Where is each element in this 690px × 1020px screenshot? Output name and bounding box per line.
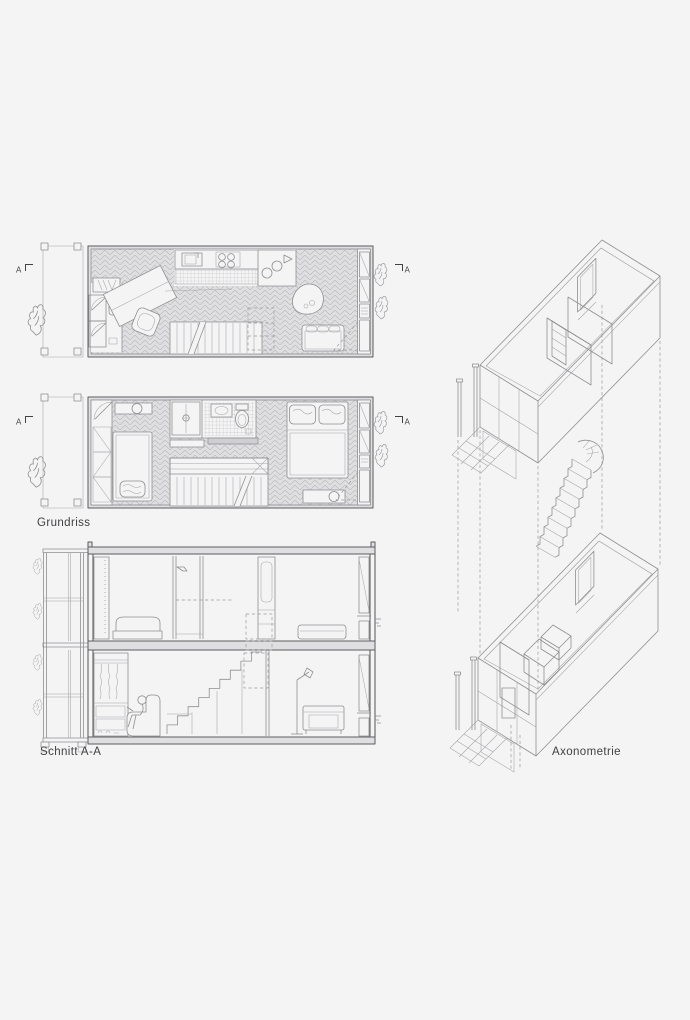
facade-window [502,688,515,718]
section-cut-symbol [26,417,34,424]
bathroom [170,400,258,447]
section-label: Schnitt A-A [40,746,101,758]
mid-cabinet [258,557,275,639]
stair-void-dashed [246,614,272,639]
plant-sketch [33,654,42,670]
section-marker-letter: A [16,418,22,427]
plant-sketch [374,411,387,434]
glazed-facade [478,670,536,744]
shelf-ladder [552,321,566,365]
plant-sketch [33,603,42,619]
balcony-structure [33,549,88,752]
axon-window [578,258,596,320]
section-cut-symbol [395,417,403,424]
toilet [236,404,249,428]
top-rim [480,240,660,401]
section-marker-letter: A [405,418,411,427]
vent-box [359,621,369,639]
section-drawing: Schnitt A-A [33,542,381,758]
drawing-canvas: A A [0,0,690,1020]
dresser [115,403,152,414]
terrace-deck [41,243,83,357]
terrace-deck [41,394,83,508]
plant-sketch [33,699,42,715]
counter [208,438,258,444]
tall-cabinet [94,557,109,639]
kitchen-boxes [524,625,571,685]
section-cut-symbol [26,265,34,272]
section-marker-letter: A [16,266,22,275]
single-bed [113,432,152,501]
plant-sketch [374,263,387,286]
plant-sketch [375,296,388,319]
glazed-facade [480,377,538,451]
sofa-section [303,706,344,734]
floor-plan-level-2: A A Grundriss [16,394,411,529]
axon-upper-module [452,240,660,479]
axon-window [576,551,594,613]
bed-section [113,617,162,639]
axon-interior-lower [484,541,652,715]
top-rim [478,533,658,694]
vent-box [359,718,369,736]
slat-screen [481,724,514,772]
kitchen [174,249,296,286]
axonometric-drawing: Axonometrie [450,240,660,772]
plan-label: Grundriss [37,517,90,529]
section-cut-symbol [395,265,403,272]
section-marker-letter: A [405,266,411,275]
double-bed [287,402,348,478]
sofa [302,325,344,351]
plant-sketch [33,558,42,574]
stair-section [167,650,269,736]
washbasin [211,404,232,417]
section-upper-level [94,556,381,650]
wardrobe [91,400,112,505]
architectural-sheet: A A [0,0,690,1020]
axonometric-label: Axonometrie [552,746,621,758]
axon-lower-module [450,533,658,772]
projection-lines [458,305,660,770]
section-lower-level [94,650,381,736]
shower-section [173,556,232,639]
plant-sketch [375,444,388,467]
axon-interior-upper [486,248,654,385]
wardrobe-section [94,653,128,736]
slat-screen [483,431,516,479]
floor-plan-level-1: A A [16,243,411,357]
stair-plan [170,458,268,506]
bench-section [298,625,346,639]
shelf [170,440,204,447]
person-in-armchair [127,695,160,736]
